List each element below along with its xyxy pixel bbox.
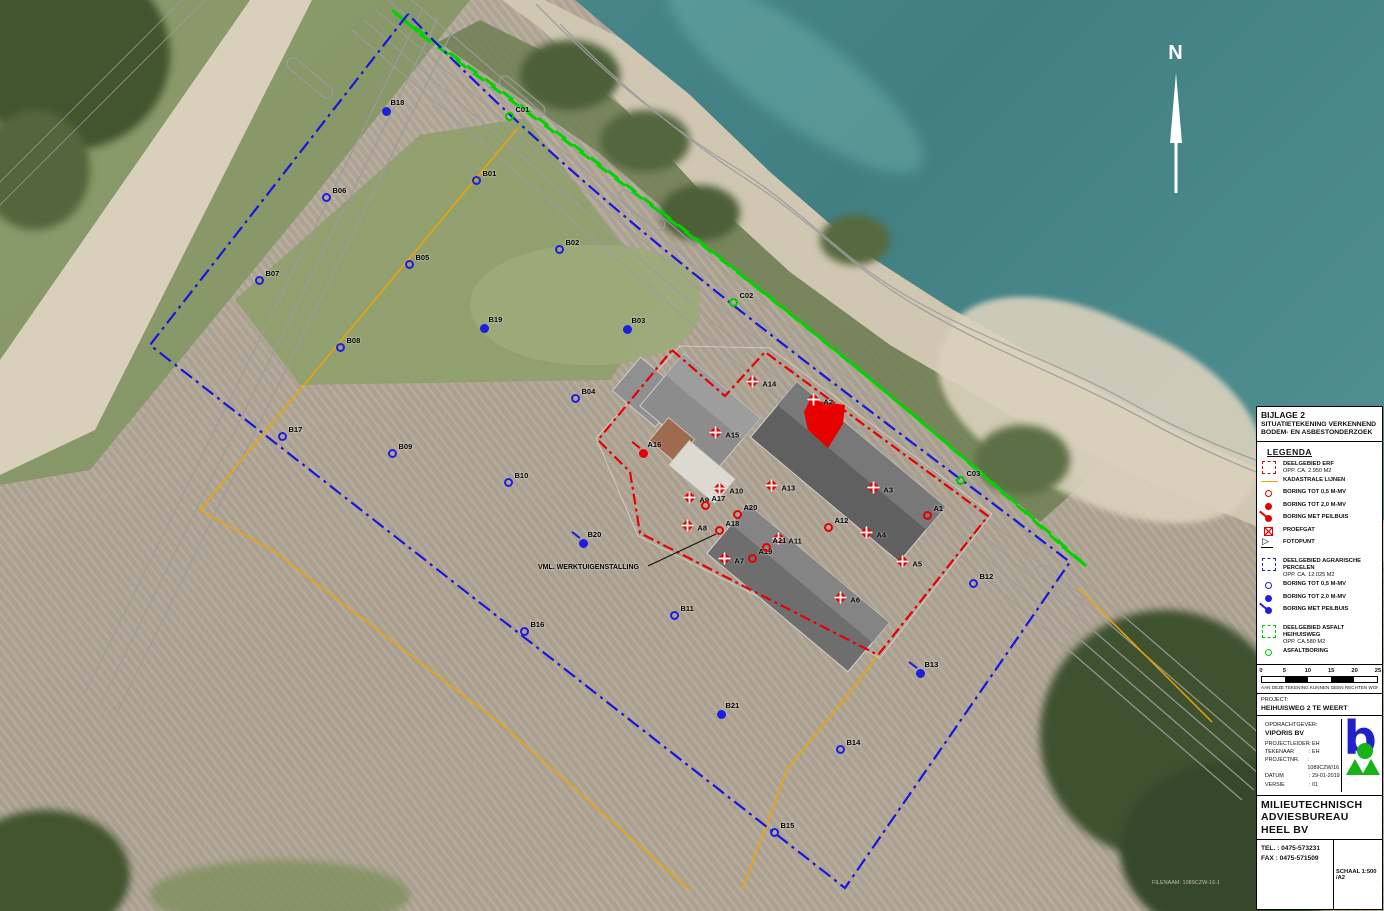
marker-B02: B02 [555,245,564,254]
company-logo: b [1341,719,1382,792]
meta-key: VERSIE [1265,781,1309,789]
company-name-line-1: MILIEUTECHNISCH [1261,799,1378,812]
legend-item: BORING TOT 0,5 M-MV [1261,489,1378,499]
marker-label: B13 [925,660,939,669]
scalebar-tick: 5 [1283,668,1286,674]
company-section: MILIEUTECHNISCH ADVIESBUREAU HEEL BV [1257,796,1382,841]
meta-key: PROJECTLEIDER [1265,740,1309,748]
marker-B09: B09 [388,449,397,458]
legend-item-label: DEELGEBIED AGRARISCHE PERCELEN [1283,558,1378,572]
marker-B03: B03 [623,325,632,334]
title-line-3: BODEM- EN ASBESTONDERZOEK [1261,429,1378,437]
meta-row: VERSIE: 01 [1265,781,1341,789]
fax-line: FAX : 0475-571509 [1261,854,1329,864]
map-annotation: VML. WERKTUIGENSTALLING [538,564,639,571]
marker-label: A1 [934,504,944,513]
c-open blue-icon [1261,581,1283,591]
area-green-icon [1261,625,1283,636]
marker-label: B01 [483,169,497,178]
marker-label: B06 [333,186,347,195]
marker-label: A8 [697,523,707,532]
north-arrow-glyph [1148,65,1204,205]
legend-items: DEELGEBIED ERFOPP. CA. 2.950 M2KADASTRAL… [1261,461,1378,659]
marker-B14: B14 [836,745,845,754]
marker-label: B19 [489,315,503,324]
legend-item-sub: OPP. CA.580 M2 [1283,639,1378,646]
marker-B11: B11 [670,611,679,620]
meta-value: : EH [1309,740,1319,748]
scalebar-tick: 0 [1259,668,1262,674]
meta-key: TEKENAAR [1265,748,1309,756]
marker-B13: B13 [916,669,925,678]
logo-green-dot [1357,743,1373,759]
drawing-stamp: FILENAAM: 1089CZW-16-1 [1152,880,1220,886]
c-filled red-icon [1261,502,1283,512]
legend-item-text: BORING TOT 0,5 M-MV [1283,581,1346,588]
legend-item-label: BORING TOT 2,0 M-MV [1283,594,1346,601]
legend-item: PROEFGAT [1261,527,1378,537]
meta-key: PROJECTNR. [1265,756,1307,772]
marker-B15: B15 [770,828,779,837]
legend-item-text: KADASTRALE LIJNEN [1283,477,1345,484]
marker-A10: A10 [713,482,726,495]
marker-A18: A18 [715,526,724,535]
marker-label: B20 [588,530,602,539]
scalebar [1261,676,1378,683]
scalebar-seg [1354,677,1377,682]
marker-label: A4 [876,530,886,539]
legend-item-label: BORING TOT 0,5 M-MV [1283,581,1346,588]
marker-B01: B01 [472,176,481,185]
legend-item: DEELGEBIED ERFOPP. CA. 2.950 M2 [1261,461,1378,475]
marker-B04: B04 [571,394,580,403]
tel-line: TEL. : 0475-573231 [1261,844,1329,854]
marker-B06: B06 [322,193,331,202]
marker-label: B07 [266,269,280,278]
legend-item: BORING MET PEILBUIS [1261,606,1378,616]
marker-label: B11 [681,604,694,613]
meta-value: : 01 [1309,781,1318,789]
scalebar-seg [1262,677,1285,682]
marker-label: A12 [835,516,849,525]
legend-item-text: ASFALTBORING [1283,648,1328,655]
marker-label: A21 [773,536,787,545]
marker-A6: A6 [834,591,847,604]
area-red-icon [1261,461,1283,472]
marker-label: A14 [762,379,776,388]
scalebar-tick: 10 [1305,668,1311,674]
marker-label: A20 [744,503,758,512]
scalebar-tick: 20 [1351,668,1357,674]
schaal-cell: SCHAAL 1:500 /A2 [1333,840,1382,909]
marker-A9: A9 [683,491,696,504]
area-blue-icon [1261,558,1283,569]
marker-B10: B10 [504,478,513,487]
marker-B17: B17 [278,432,287,441]
marker-label: C02 [740,291,754,300]
marker-label: A6 [850,595,860,604]
marker-A14: A14 [746,375,759,388]
marker-C03: C03 [956,476,965,485]
meta-row: TEKENAAR: EH [1265,748,1341,756]
marker-label: C03 [967,469,981,478]
marker-label: B12 [980,572,994,581]
legend-item-text: FOTOPUNT [1283,539,1315,546]
legend-item-label: BORING MET PEILBUIS [1283,606,1348,613]
c-open red-icon [1261,489,1283,499]
legend-item-label: BORING TOT 2,0 M-MV [1283,502,1346,509]
marker-label: B08 [347,336,361,345]
marker-A19: A19 [748,554,757,563]
scalebar-note: AAN DEZE TEKENING KUNNEN GEEN RECHTEN WO… [1261,685,1378,690]
marker-label: A10 [729,486,743,495]
marker-C01: C01 [505,112,514,121]
marker-A21: A21 [762,543,771,552]
marker-A20: A20 [733,510,742,519]
legend-title: LEGENDA [1267,447,1378,457]
legend-item-text: PROEFGAT [1283,527,1315,534]
marker-C02: C02 [729,298,738,307]
marker-label: B03 [632,316,646,325]
marker-B12: B12 [969,579,978,588]
legend-item-label: KADASTRALE LIJNEN [1283,477,1345,484]
marker-A12: A12 [824,523,833,532]
legend-item-sub: OPP. CA. 2.950 M2 [1283,468,1334,475]
marker-A1: A1 [923,511,932,520]
legend-item-text: BORING MET PEILBUIS [1283,606,1348,613]
marker-A3: A3 [867,481,880,494]
marker-B21: B21 [717,710,726,719]
marker-label: A2 [823,397,833,406]
legend-item-label: BORING MET PEILBUIS [1283,514,1348,521]
north-label: N [1148,42,1204,65]
marker-A16: A16 [639,449,648,458]
marker-A8: A8 [681,519,694,532]
marker-label: B16 [531,620,545,629]
legend-item: KADASTRALE LIJNEN [1261,477,1378,487]
marker-label: B05 [416,253,430,262]
marker-A2: A2 [807,393,820,406]
marker-B16: B16 [520,627,529,636]
legend-item-label: BORING TOT 0,5 M-MV [1283,489,1346,496]
legend-item-text: BORING MET PEILBUIS [1283,514,1348,521]
legend-item-label: PROEFGAT [1283,527,1315,534]
legend-item-label: DEELGEBIED ASFALT HEIHUISWEG [1283,625,1378,639]
marker-label: A5 [912,559,922,568]
proefgat-red-icon [1261,527,1283,537]
marker-A17: A17 [701,501,710,510]
scalebar-tick: 25 [1375,668,1381,674]
meta-rows: PROJECTLEIDER: EHTEKENAAR: EHPROJECTNR.:… [1265,740,1341,789]
scalebar-section: 0510152025 AAN DEZE TEKENING KUNNEN GEEN… [1257,665,1382,694]
marker-label: C01 [516,105,530,114]
meta-value: : EH [1309,748,1319,756]
legend-item: BORING TOT 0,5 M-MV [1261,581,1378,591]
client-label: OPDRACHTGEVER: [1265,722,1341,728]
legend-item-text: DEELGEBIED ASFALT HEIHUISWEGOPP. CA.580 … [1283,625,1378,646]
marker-label: B14 [847,738,861,747]
legend-item: BORING MET PEILBUIS [1261,514,1378,524]
c-filled blue-icon [1261,594,1283,604]
c-peil blue-icon [1261,606,1283,616]
meta-row: PROJECTNR.: 1089CZW/16 [1265,756,1341,772]
meta-row: PROJECTLEIDER: EH [1265,740,1341,748]
legend-item: DEELGEBIED ASFALT HEIHUISWEGOPP. CA.580 … [1261,625,1378,646]
marker-label: B17 [289,425,303,434]
legend-item-text: BORING TOT 0,5 M-MV [1283,489,1346,496]
client-meta-left: OPDRACHTGEVER: VIPORIS BV PROJECTLEIDER:… [1261,719,1341,792]
meta-value: : 1089CZW/16 [1307,756,1340,772]
marker-label: A7 [734,556,744,565]
scalebar-ticks: 0510152025 [1261,668,1378,676]
legend-item: FOTOPUNT [1261,539,1378,549]
contact-tels: TEL. : 0475-573231 FAX : 0475-571509 [1257,840,1333,909]
marker-B05: B05 [405,260,414,269]
legend-item: BORING TOT 2,0 M-MV [1261,502,1378,512]
situatietekening-canvas: B01B02B03B04B05B06B07B08B09B10B11B12B13B… [0,0,1384,911]
marker-label: B02 [566,238,580,247]
marker-label: A17 [712,494,726,503]
line-orange-icon [1261,477,1283,487]
marker-A4: A4 [860,526,873,539]
title-line-2: SITUATIETEKENING VERKENNEND [1261,421,1378,429]
marker-B07: B07 [255,276,264,285]
legend-item: ASFALTBORING [1261,648,1378,658]
client-value: VIPORIS BV [1265,730,1341,737]
marker-A13: A13 [765,479,778,492]
legend-section: LEGENDA DEELGEBIED ERFOPP. CA. 2.950 M2K… [1257,442,1382,665]
marker-B20: B20 [579,539,588,548]
panel-title: BIJLAGE 2 SITUATIETEKENING VERKENNEND BO… [1257,407,1382,442]
marker-label: A16 [648,440,662,449]
logo-green-triangle-2 [1362,759,1380,775]
north-arrow: N [1148,42,1204,207]
legend-item-text: BORING TOT 2,0 M-MV [1283,502,1346,509]
marker-label: B18 [391,98,405,107]
scalebar-tick: 15 [1328,668,1334,674]
contact-section: TEL. : 0475-573231 FAX : 0475-571509 SCH… [1257,840,1382,909]
title-block-panel: BIJLAGE 2 SITUATIETEKENING VERKENNEND BO… [1256,406,1383,910]
meta-key: DATUM [1265,772,1309,780]
project-label: PROJECT: [1261,697,1378,703]
marker-B18: B18 [382,107,391,116]
legend-item-label: FOTOPUNT [1283,539,1315,546]
marker-label: A13 [781,483,795,492]
marker-label: B04 [582,387,596,396]
marker-A15: A15 [709,426,722,439]
marker-label: A18 [726,519,740,528]
legend-item: BORING TOT 2,0 M-MV [1261,594,1378,604]
scalebar-seg [1331,677,1354,682]
marker-label: A3 [883,485,893,494]
legend-item-text: DEELGEBIED ERFOPP. CA. 2.950 M2 [1283,461,1334,475]
marker-A7: A7 [718,552,731,565]
legend-item-text: DEELGEBIED AGRARISCHE PERCELENOPP. CA. 1… [1283,558,1378,579]
marker-label: A11 [788,536,801,545]
marker-A5: A5 [896,555,909,568]
scalebar-seg [1285,677,1308,682]
c-peil red-icon [1261,514,1283,524]
scalebar-seg [1308,677,1331,682]
meta-value: : 29-01-2019 [1309,772,1340,780]
c-open green-icon [1261,648,1283,658]
marker-label: B21 [726,701,740,710]
marker-label: A15 [725,430,739,439]
fotopunt-icon [1261,539,1283,549]
bijlage-title: BIJLAGE 2 [1261,410,1378,421]
legend-item: DEELGEBIED AGRARISCHE PERCELENOPP. CA. 1… [1261,558,1378,579]
marker-label: B09 [399,442,413,451]
company-name-line-2: ADVIESBUREAU HEEL BV [1261,811,1378,836]
marker-label: B10 [515,471,529,480]
marker-B08: B08 [336,343,345,352]
legend-item-text: BORING TOT 2,0 M-MV [1283,594,1346,601]
marker-B19: B19 [480,324,489,333]
legend-item-label: DEELGEBIED ERF [1283,461,1334,468]
meta-row: DATUM: 29-01-2019 [1265,772,1341,780]
client-meta-section: OPDRACHTGEVER: VIPORIS BV PROJECTLEIDER:… [1257,716,1382,796]
legend-item-sub: OPP. CA. 12.025 M2 [1283,572,1378,579]
marker-label: B15 [781,821,795,830]
legend-item-label: ASFALTBORING [1283,648,1328,655]
